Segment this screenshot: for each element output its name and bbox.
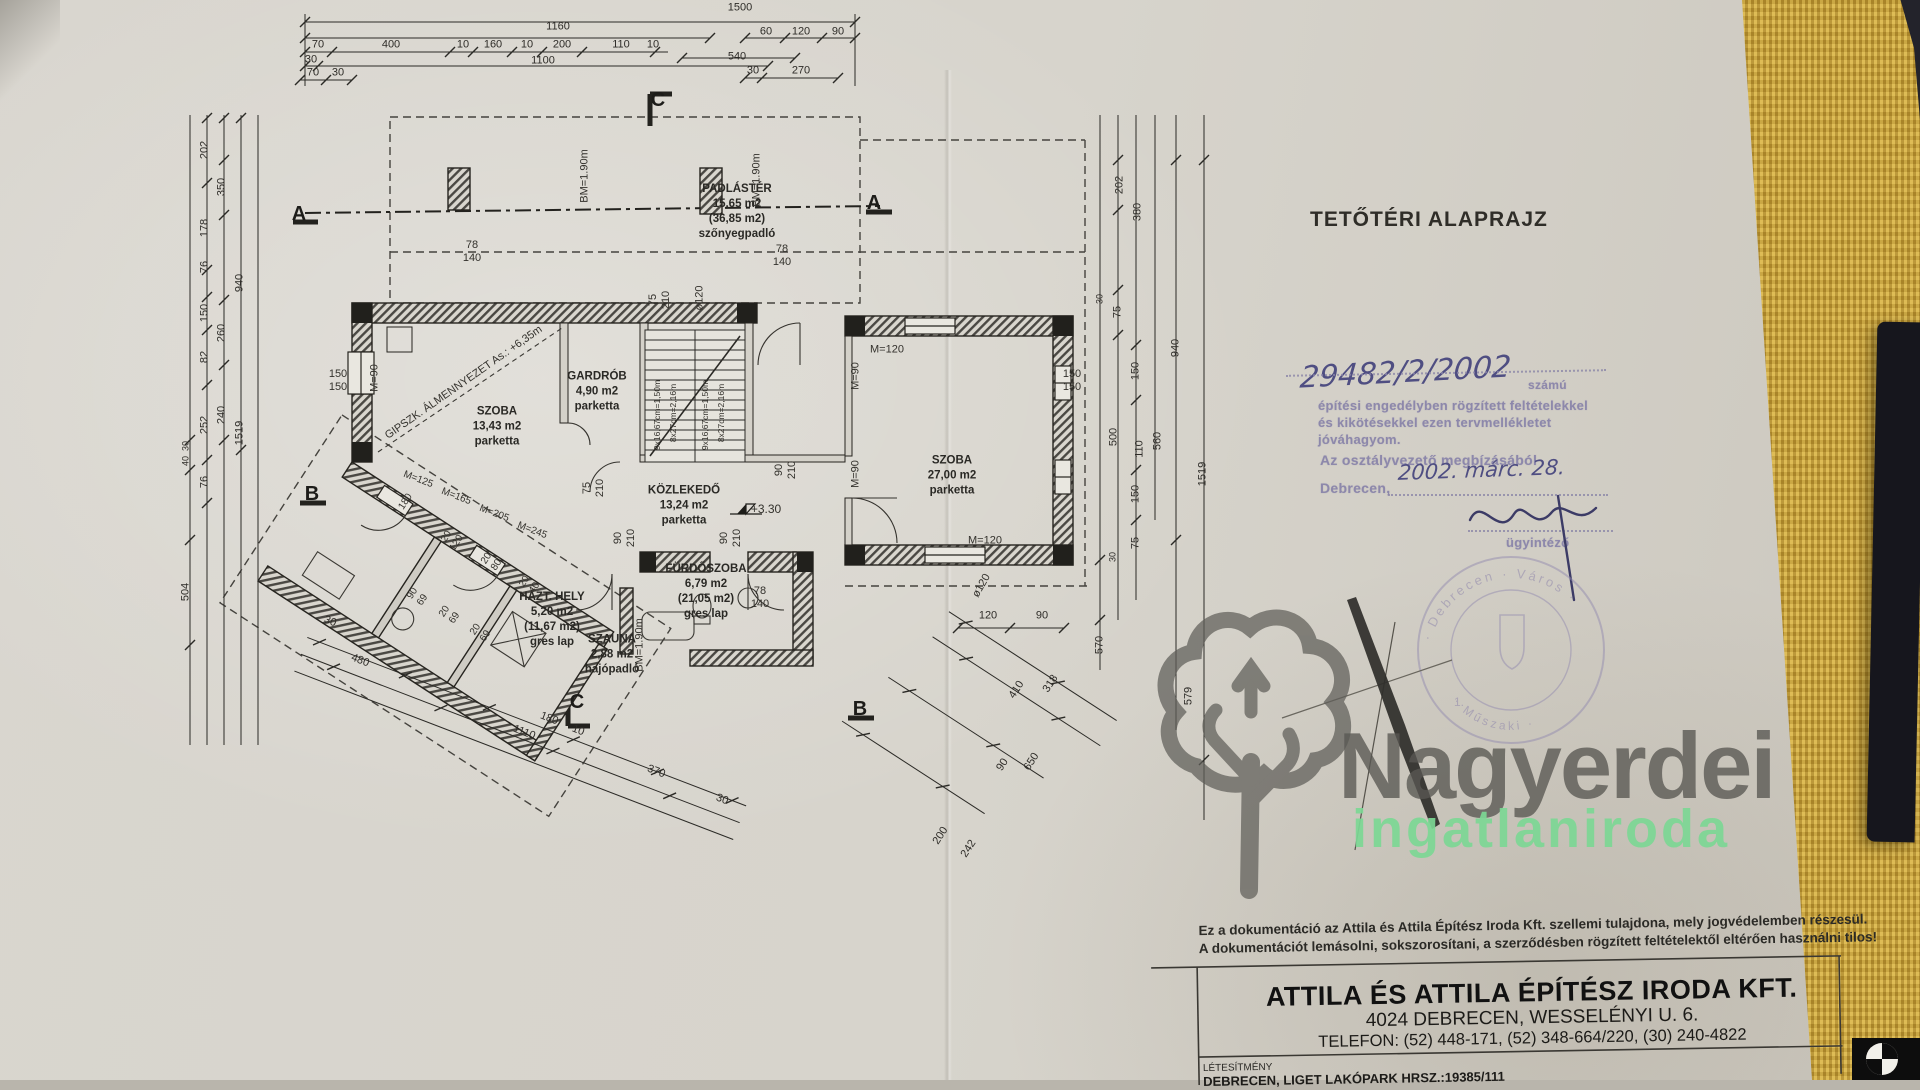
realtor-tree-logo	[1166, 618, 1344, 890]
architect-logo	[1852, 1038, 1920, 1080]
watermark-tagline: ingatlaniroda	[1352, 798, 1730, 860]
photographed-blueprint: PADLÁSTÉR 15,65 m2 (36,85 m2) szőnyegpad…	[0, 0, 1920, 1080]
